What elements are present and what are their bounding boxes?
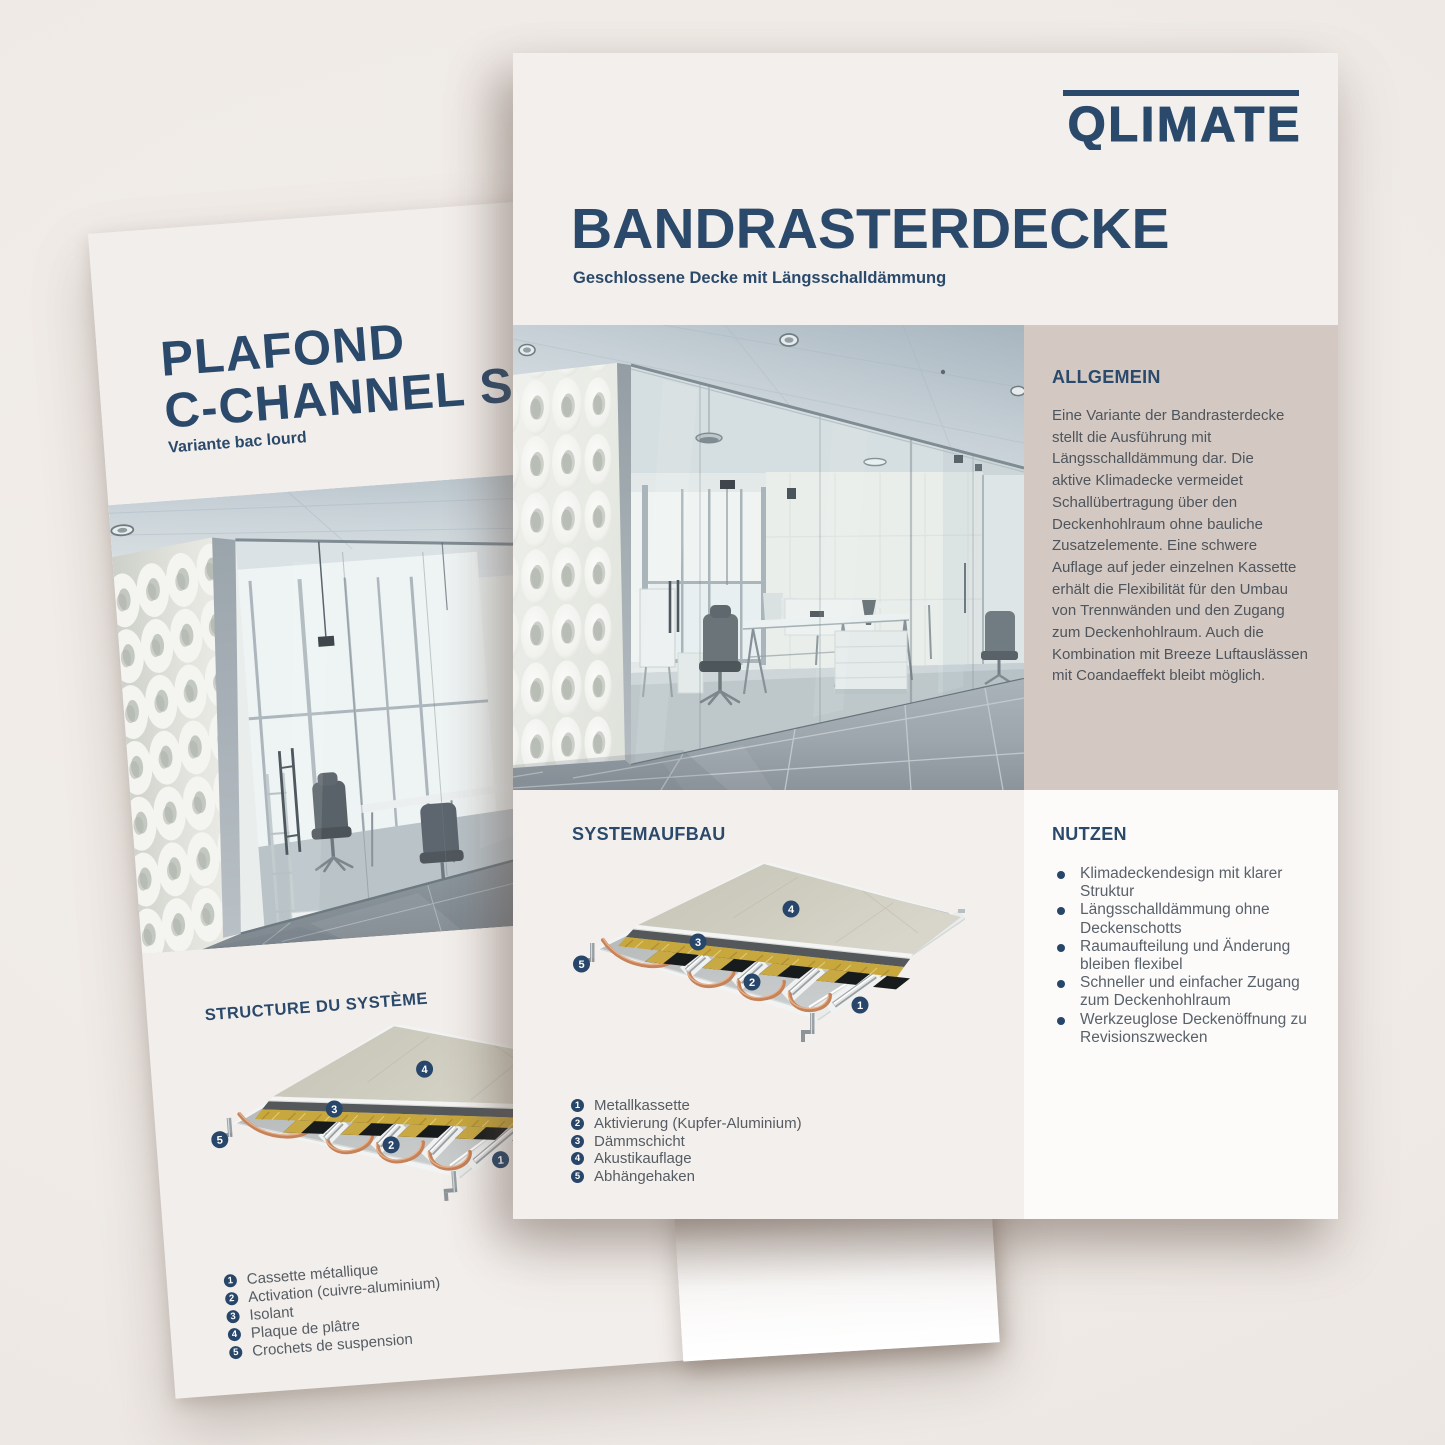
svg-text:1: 1 [497,1154,504,1166]
svg-text:1: 1 [857,1000,863,1012]
svg-text:2: 2 [749,977,755,989]
svg-text:3: 3 [695,937,701,949]
svg-text:2: 2 [388,1140,395,1152]
svg-text:5: 5 [578,959,584,971]
svg-text:5: 5 [216,1134,223,1146]
svg-text:QLIMATE: QLIMATE [1068,98,1302,150]
svg-text:3: 3 [331,1104,338,1116]
svg-text:4: 4 [788,904,795,916]
